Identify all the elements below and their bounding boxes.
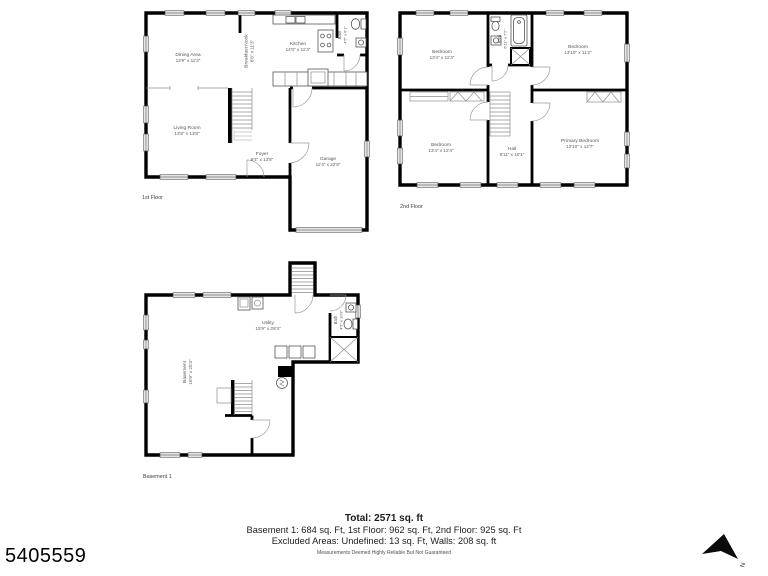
toilet-tank	[361, 19, 366, 29]
floor-areas: Basement 1: 684 sq. Ft, 1st Floor: 962 s…	[0, 525, 768, 535]
room-dims-bath-basement: 4'5" x 10'9"	[339, 310, 344, 330]
room-dims-dining: 13'9" x 11'3"	[176, 58, 201, 63]
room-dims-nook: 6'8" x 11'3"	[250, 39, 255, 62]
stove	[318, 30, 333, 52]
dryer	[252, 297, 263, 309]
room-label-bath-basement: Bath	[333, 315, 338, 324]
floor-label-basement: Basement 1	[143, 474, 172, 480]
room-dims-basement: 16'9" x 25'3"	[188, 359, 193, 385]
room-dims-living: 13'8" x 13'8"	[174, 131, 200, 136]
second-floor-plan: Bedroom 13'4" x 11'3" Bath 6'11" x 7'2" …	[396, 8, 632, 214]
north-label: N	[738, 561, 746, 568]
room-dims-garage: 11'4" x 22'8"	[316, 162, 341, 167]
toilet-tank	[353, 319, 358, 329]
toilet	[351, 19, 359, 30]
room-label-bath2: Bath	[497, 34, 502, 43]
room-dims-kitchen: 14'0" x 11'3"	[286, 47, 311, 52]
first-floor-plan: Dining Area 13'9" x 11'3" Breakfast Nook…	[140, 8, 380, 236]
first-floor-walls	[146, 13, 367, 230]
room-label-bath1: Bath	[337, 30, 342, 39]
area-summary: Total: 2571 sq. ft Basement 1: 684 sq. F…	[0, 513, 768, 556]
stair-wall	[228, 88, 232, 143]
total-area: Total: 2571 sq. ft	[0, 513, 768, 524]
disclaimer: Measurements Deemed Highly Reliable But …	[0, 550, 768, 556]
toilet	[492, 21, 499, 30]
listing-id: 5405559	[5, 545, 86, 568]
toilet	[344, 319, 352, 329]
room-dims-hall: 6'11" x 10'1"	[500, 152, 525, 157]
excluded-areas: Excluded Areas: Undefined: 13 sq. Ft, Wa…	[0, 536, 768, 546]
basement-plan: Utility 15'9" x 29'3" Basement 16'9" x 2…	[140, 258, 380, 488]
floor-label-first: 1st Floor	[142, 195, 163, 201]
room-dims-bedroom-bl: 13'4" x 12'4"	[428, 148, 454, 153]
room-dims-bedroom-tl: 13'4" x 11'3"	[430, 55, 455, 60]
room-dims-foyer: 9'4" x 13'8"	[251, 157, 274, 162]
room-dims-utility: 15'9" x 29'3"	[255, 326, 281, 331]
room-dims-bath2: 6'11" x 7'2"	[503, 29, 508, 49]
room-dims-bath1: 4'5" x 6'1"	[343, 26, 348, 44]
room-dims-primary: 13'10" x 12'7"	[566, 144, 594, 149]
north-arrow-triangle	[702, 534, 738, 559]
toilet-tank	[491, 17, 500, 22]
basement-walls	[146, 263, 358, 455]
room-dims-bedroom-tr: 13'10" x 11'2"	[564, 50, 592, 55]
floor-label-second: 2nd Floor	[400, 204, 423, 210]
north-arrow-icon: N	[694, 527, 758, 569]
